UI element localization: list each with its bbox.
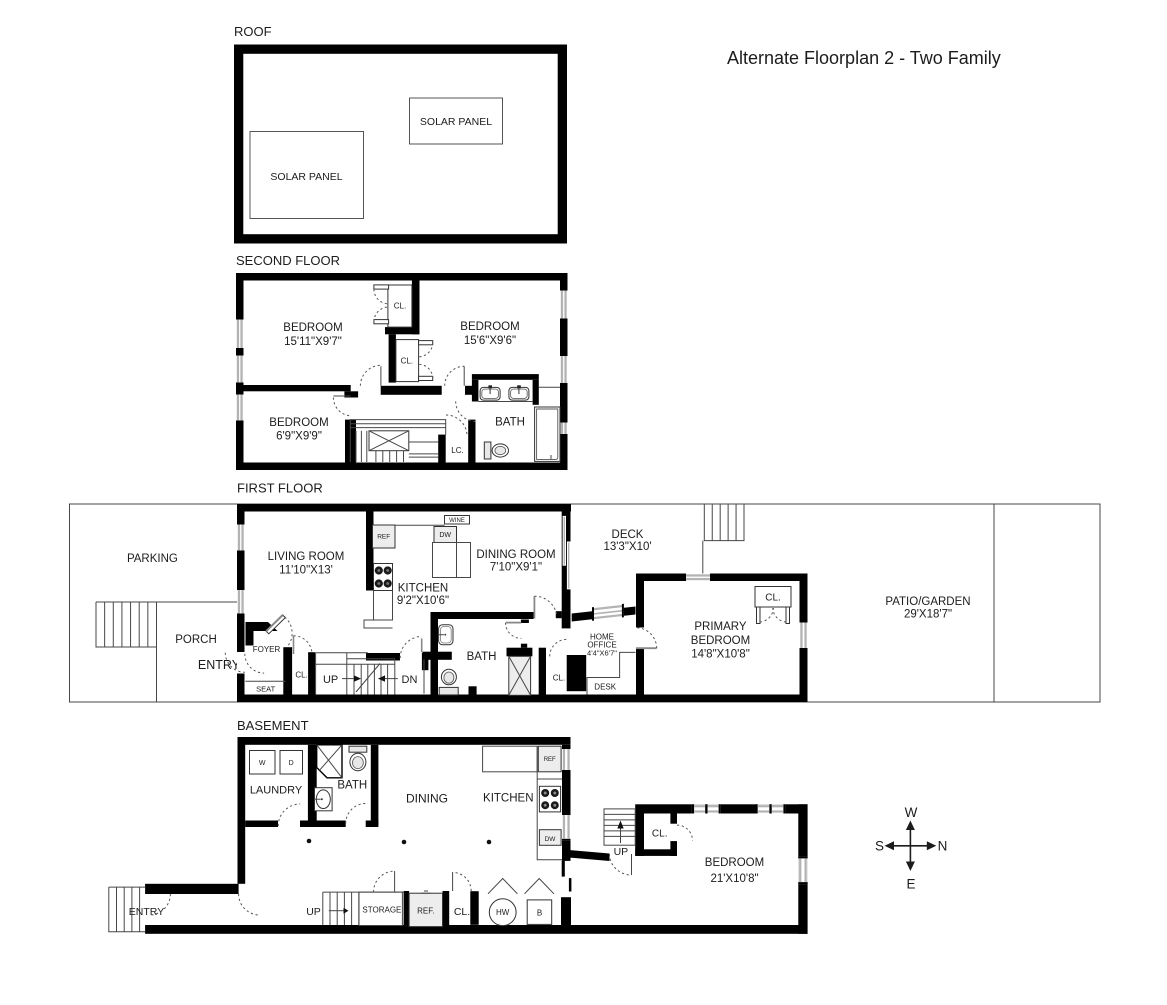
svg-text:SOLAR PANEL: SOLAR PANEL	[270, 171, 342, 183]
svg-text:PORCH: PORCH	[175, 634, 217, 646]
svg-text:BATH: BATH	[337, 780, 367, 792]
svg-text:11'10"X13': 11'10"X13'	[279, 565, 333, 577]
svg-text:STORAGE: STORAGE	[362, 906, 401, 915]
svg-text:Alternate Floorplan 2 - Two Fa: Alternate Floorplan 2 - Two Family	[727, 48, 1001, 68]
svg-text:LAUNDRY: LAUNDRY	[250, 785, 303, 797]
svg-text:ROOF: ROOF	[234, 24, 272, 39]
svg-text:13'3"X10': 13'3"X10'	[603, 541, 651, 553]
svg-text:WINE: WINE	[449, 518, 465, 524]
svg-text:DINING ROOM: DINING ROOM	[476, 549, 555, 561]
svg-text:KITCHEN: KITCHEN	[398, 583, 448, 595]
svg-text:HW: HW	[496, 908, 510, 917]
svg-text:4'4"X6'7": 4'4"X6'7"	[587, 648, 617, 657]
svg-text:BASEMENT: BASEMENT	[237, 718, 309, 733]
svg-text:BEDROOM: BEDROOM	[705, 857, 764, 869]
svg-text:BEDROOM: BEDROOM	[269, 417, 328, 429]
svg-text:DW: DW	[439, 532, 451, 539]
svg-text:DW: DW	[545, 836, 557, 843]
svg-text:15'11"X9'7": 15'11"X9'7"	[284, 336, 342, 348]
svg-text:SECOND FLOOR: SECOND FLOOR	[236, 253, 340, 268]
svg-text:UP: UP	[306, 906, 321, 918]
svg-text:FIRST FLOOR: FIRST FLOOR	[237, 481, 323, 496]
svg-text:CL.: CL.	[765, 593, 781, 604]
svg-text:21'X10'8": 21'X10'8"	[710, 873, 758, 885]
svg-text:BEDROOM: BEDROOM	[460, 321, 519, 333]
svg-text:PARKING: PARKING	[127, 553, 178, 565]
svg-text:SEAT: SEAT	[256, 685, 275, 694]
svg-text:DINING: DINING	[406, 792, 448, 806]
svg-text:REF.: REF.	[417, 907, 434, 916]
svg-text:LIVING ROOM: LIVING ROOM	[268, 551, 345, 563]
svg-text:W: W	[905, 805, 918, 820]
svg-text:S: S	[875, 839, 884, 854]
svg-text:DN: DN	[402, 674, 418, 686]
svg-text:FOYER: FOYER	[253, 645, 281, 654]
svg-text:REF: REF	[544, 757, 556, 763]
svg-text:PATIO/GARDEN: PATIO/GARDEN	[885, 596, 970, 608]
svg-text:B: B	[537, 909, 542, 918]
svg-text:CL.: CL.	[553, 674, 565, 683]
svg-text:BEDROOM: BEDROOM	[283, 322, 342, 334]
svg-text:9'2"X10'6": 9'2"X10'6"	[397, 595, 449, 607]
svg-text:UP: UP	[614, 846, 629, 858]
svg-text:BEDROOM: BEDROOM	[691, 635, 750, 647]
svg-text:REF: REF	[377, 534, 390, 541]
svg-text:CL.: CL.	[295, 671, 307, 680]
svg-text:PRIMARY: PRIMARY	[694, 621, 747, 633]
svg-text:BATH: BATH	[495, 417, 525, 429]
svg-text:DECK: DECK	[612, 529, 644, 541]
svg-text:6'9"X9'9": 6'9"X9'9"	[276, 431, 322, 443]
svg-text:CL.: CL.	[394, 302, 406, 311]
svg-text:UP: UP	[323, 674, 338, 686]
svg-text:14'8"X10'8": 14'8"X10'8"	[691, 649, 750, 661]
svg-text:7'10"X9'1": 7'10"X9'1"	[490, 562, 542, 574]
svg-text:DESK: DESK	[594, 682, 616, 691]
svg-text:CL.: CL.	[652, 829, 668, 840]
svg-text:W: W	[259, 760, 266, 767]
svg-text:15'6"X9'6": 15'6"X9'6"	[464, 335, 516, 347]
svg-text:29'X18'7": 29'X18'7"	[904, 609, 952, 621]
svg-text:ENTRY: ENTRY	[198, 658, 241, 672]
svg-text:SOLAR PANEL: SOLAR PANEL	[420, 116, 492, 128]
svg-text:N: N	[938, 839, 948, 854]
svg-text:CL.: CL.	[401, 357, 413, 366]
svg-text:CL.: CL.	[454, 906, 470, 918]
svg-text:E: E	[906, 877, 915, 892]
svg-text:D: D	[289, 760, 294, 767]
svg-text:LC.: LC.	[451, 446, 463, 455]
svg-text:ENTRY: ENTRY	[129, 906, 164, 918]
svg-text:KITCHEN: KITCHEN	[483, 793, 533, 805]
svg-text:BATH: BATH	[467, 651, 497, 663]
